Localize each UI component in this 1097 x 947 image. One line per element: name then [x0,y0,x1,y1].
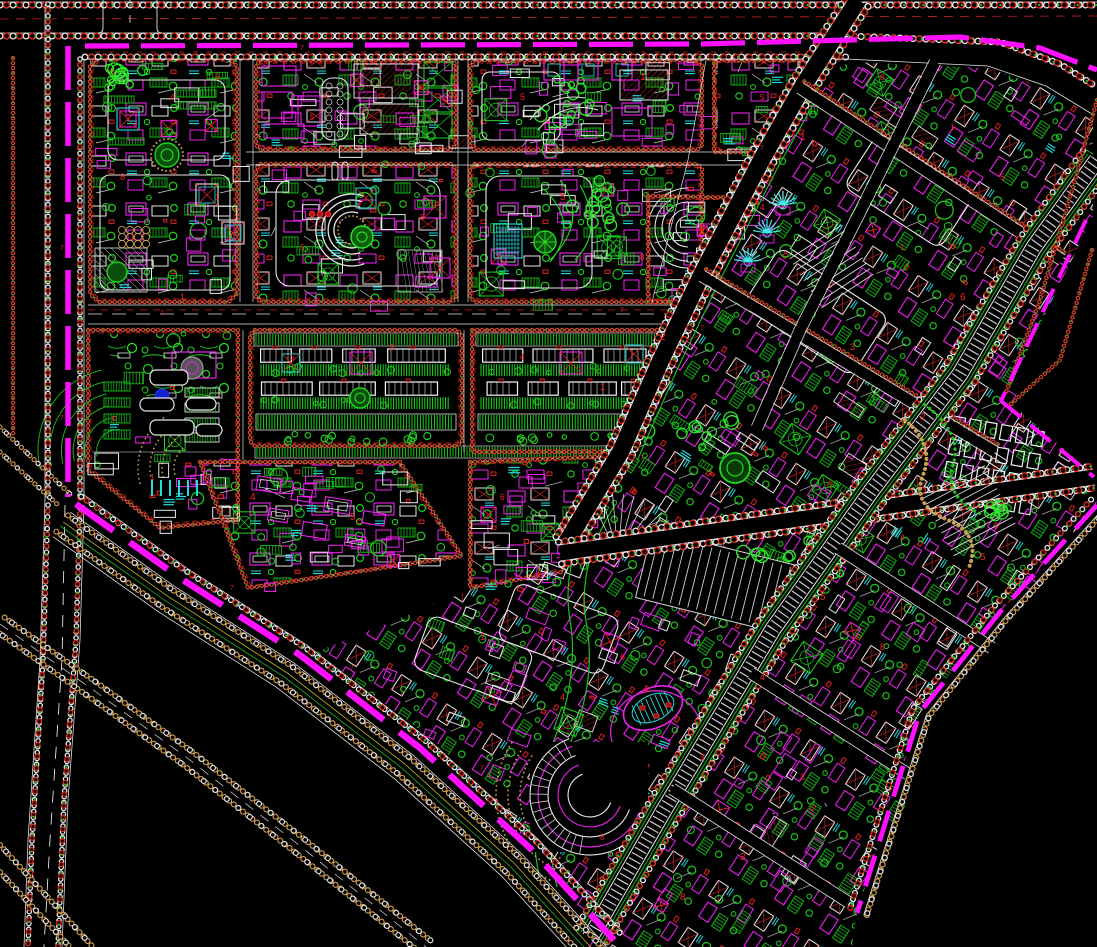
svg-text:2: 2 [660,332,666,343]
svg-text:4: 4 [560,522,566,533]
svg-text:3: 3 [850,342,855,352]
svg-text:4: 4 [760,672,765,682]
svg-text:5: 5 [560,192,566,203]
svg-text:6: 6 [620,652,625,662]
svg-text:5: 5 [760,93,765,102]
svg-text:7: 7 [1010,245,1014,252]
svg-text:7: 7 [480,765,484,772]
svg-text:7: 7 [430,307,434,314]
svg-text:7: 7 [350,665,354,672]
svg-text:3: 3 [800,772,805,782]
svg-text:7: 7 [760,145,764,152]
svg-text:5: 5 [300,243,305,252]
svg-text:4: 4 [560,692,565,702]
svg-text:7: 7 [640,455,644,462]
svg-text:4: 4 [900,533,905,542]
svg-text:8: 8 [640,253,645,262]
svg-text:5: 5 [980,552,986,563]
svg-text:5: 5 [350,512,356,523]
svg-text:5: 5 [290,353,295,362]
svg-text:8: 8 [420,213,425,222]
svg-text:7: 7 [620,307,624,314]
svg-text:6: 6 [700,222,705,232]
svg-text:4: 4 [250,492,256,503]
svg-text:5: 5 [820,592,826,603]
svg-text:1: 1 [900,243,905,252]
svg-text:4: 4 [520,353,525,362]
svg-text:4: 4 [643,684,649,695]
svg-text:5: 5 [390,343,395,352]
svg-text:3: 3 [740,852,746,863]
svg-text:1: 1 [215,193,220,202]
svg-text:7: 7 [940,695,944,702]
svg-text:5: 5 [310,113,315,122]
svg-text:7: 7 [160,310,164,317]
svg-text:1: 1 [800,132,806,143]
svg-text:8: 8 [880,642,885,652]
svg-text:5: 5 [520,92,525,102]
svg-text:7: 7 [700,325,704,332]
svg-text:1: 1 [640,72,646,83]
svg-text:4: 4 [760,203,765,212]
svg-text:5: 5 [215,72,220,82]
svg-text:6: 6 [500,493,505,502]
svg-text:1: 1 [130,232,135,242]
svg-text:7: 7 [680,855,684,862]
svg-text:8: 8 [680,892,686,903]
svg-text:1: 1 [950,123,955,132]
svg-text:3: 3 [700,753,705,762]
svg-text:7: 7 [60,245,64,252]
svg-text:1: 1 [180,292,185,302]
svg-text:5: 5 [1000,172,1005,182]
svg-text:7: 7 [900,475,904,482]
svg-text:7: 7 [560,45,564,52]
svg-text:7: 7 [230,585,234,592]
svg-text:1: 1 [150,473,155,482]
svg-text:1: 1 [760,533,765,542]
svg-text:2: 2 [920,412,926,423]
svg-text:1: 1 [480,632,486,643]
svg-text:1: 1 [600,382,605,392]
svg-text:8: 8 [880,73,885,82]
svg-text:6: 6 [960,292,966,303]
svg-text:4: 4 [170,93,175,102]
svg-text:8: 8 [600,833,605,842]
svg-text:5: 5 [420,83,425,92]
svg-text:7: 7 [820,39,824,46]
svg-text:7: 7 [60,415,64,422]
svg-text:8: 8 [120,172,125,182]
svg-text:7: 7 [300,45,304,52]
